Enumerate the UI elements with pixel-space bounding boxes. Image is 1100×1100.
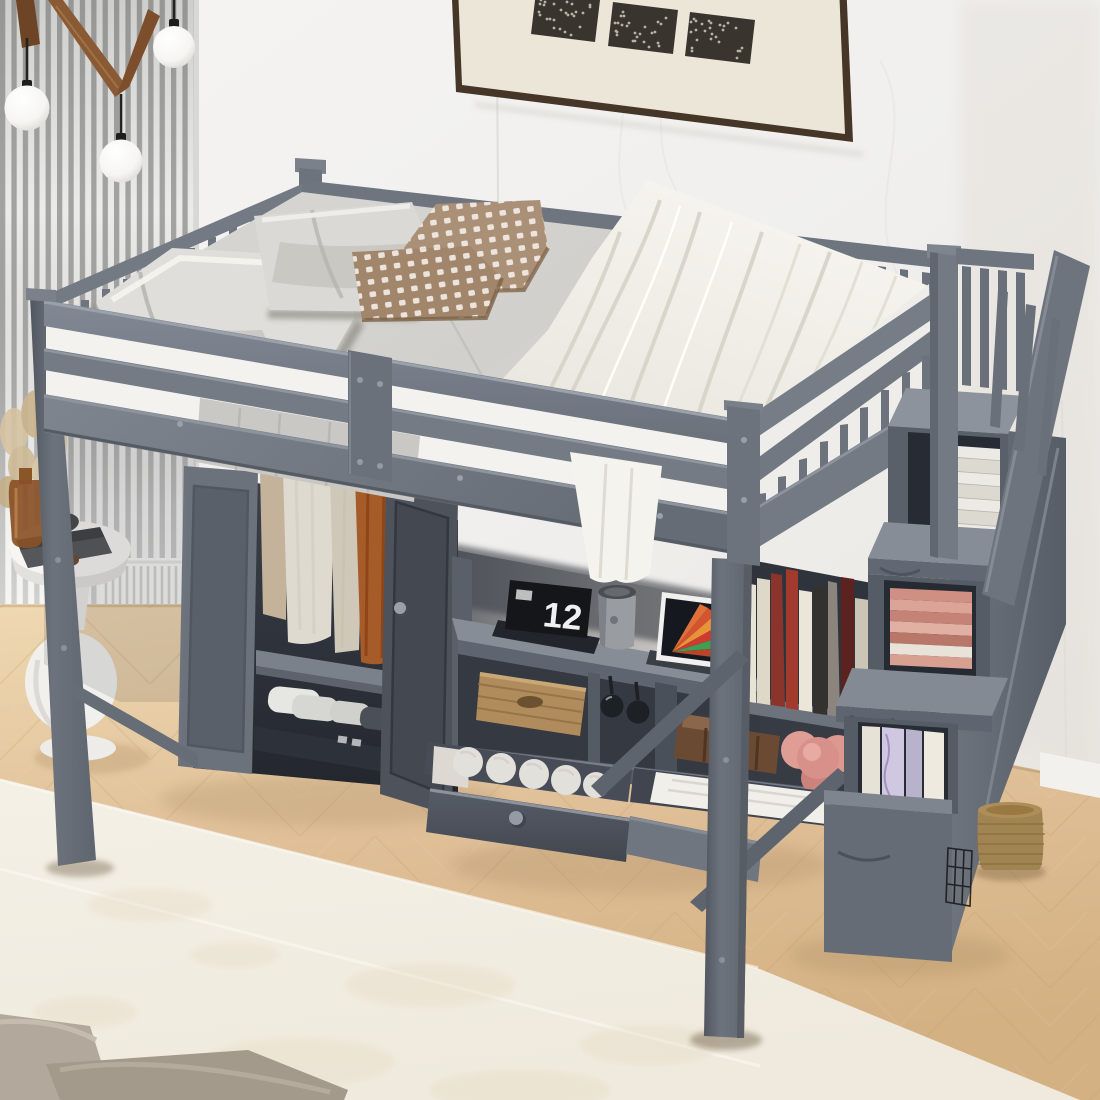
svg-text:12: 12	[541, 595, 584, 638]
